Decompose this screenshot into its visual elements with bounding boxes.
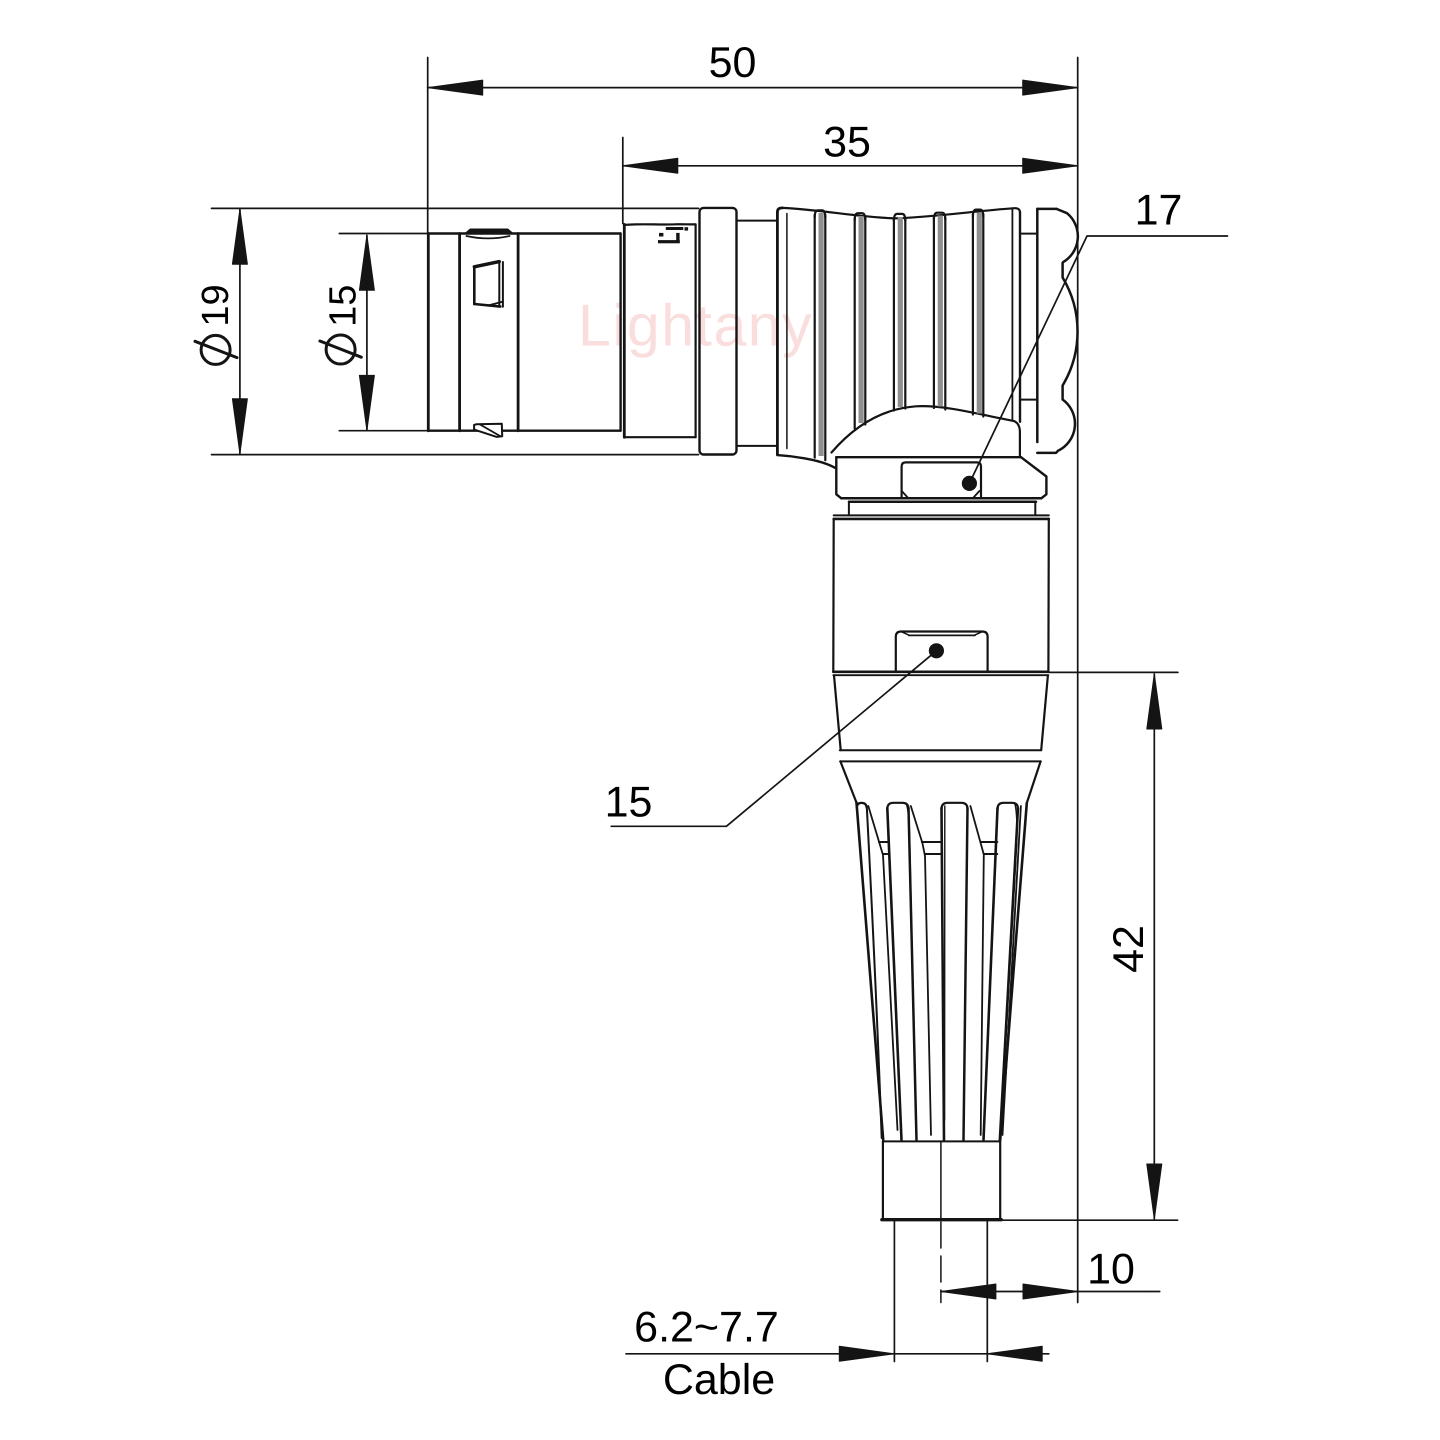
svg-text:50: 50: [709, 39, 757, 87]
svg-text:10: 10: [1087, 1246, 1135, 1294]
svg-text:17: 17: [1135, 187, 1183, 235]
svg-text:15: 15: [323, 285, 365, 327]
svg-text:Cable: Cable: [663, 1356, 775, 1404]
svg-text:19: 19: [195, 284, 237, 326]
svg-text:35: 35: [823, 119, 871, 167]
svg-text:42: 42: [1105, 925, 1153, 973]
svg-text:6.2~7.7: 6.2~7.7: [634, 1303, 779, 1351]
svg-text:15: 15: [605, 779, 653, 827]
